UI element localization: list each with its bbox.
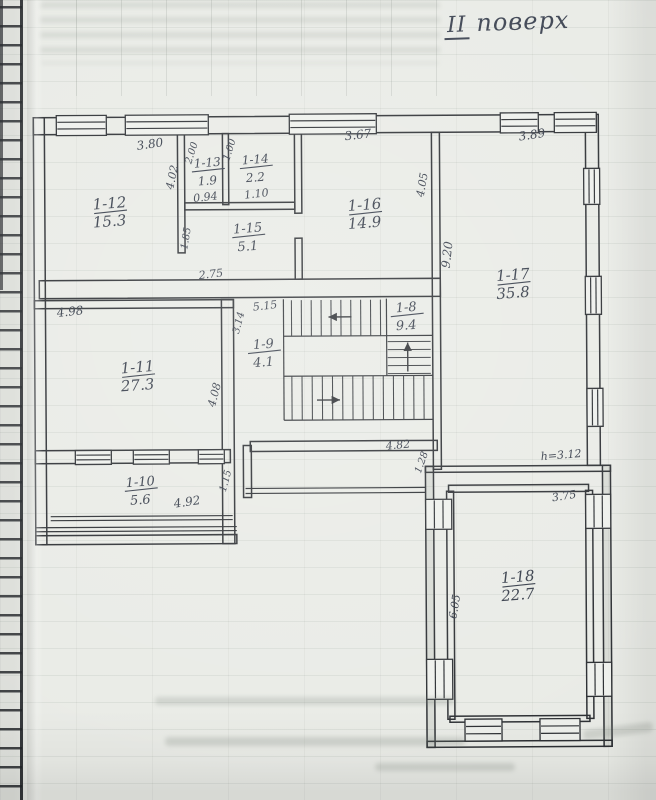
room-area-label: 14.9 <box>347 213 382 234</box>
dimension-label: 3.80 <box>136 135 165 153</box>
window <box>56 115 106 135</box>
window <box>75 450 111 464</box>
window <box>587 662 612 696</box>
wall-line <box>246 487 426 488</box>
dimension-label: 4.05 <box>414 172 431 199</box>
window-pane-line <box>290 120 375 121</box>
wall <box>294 133 301 213</box>
dimension-label: 1.85 <box>179 227 194 251</box>
room-number-label: 1-13 <box>193 155 221 171</box>
wall-line <box>36 531 237 532</box>
stair-arrows-group <box>316 317 408 401</box>
room-area-label: 5.1 <box>237 239 259 256</box>
dimension-label: 3.75 <box>551 488 577 504</box>
window <box>465 719 502 741</box>
labels-group: 1-1215.31-131.91-142.21-155.11-1614.91-1… <box>54 125 583 622</box>
scanned-floor-plan-page: IIповерх 1-1215.31-131.91-142.21-155.11-… <box>0 0 656 800</box>
room-number-label: 1-14 <box>241 151 269 167</box>
wall <box>427 740 612 747</box>
dimension-label: 0.94 <box>192 189 218 205</box>
dimension-label: 6.05 <box>446 593 463 619</box>
wall-line <box>36 527 237 528</box>
room-area-label: 27.3 <box>119 375 155 396</box>
room-area-label: 9.4 <box>395 318 417 335</box>
dimension-label: 4.82 <box>384 437 411 452</box>
room-area-label: 22.7 <box>500 585 536 606</box>
dimension-label: 1.10 <box>243 186 269 202</box>
wall <box>36 535 237 545</box>
room-area-label: 35.8 <box>496 283 531 303</box>
window <box>584 168 600 204</box>
window <box>198 450 224 464</box>
dimension-label: 1.15 <box>218 469 234 493</box>
room-area-label: 5.6 <box>129 492 151 509</box>
wall-line <box>284 335 433 336</box>
dimension-label: 4.92 <box>172 493 201 511</box>
window <box>585 276 601 314</box>
room-area-label: 15.3 <box>92 211 127 231</box>
window <box>586 494 611 528</box>
window <box>587 388 603 426</box>
window <box>125 115 208 136</box>
dimension-label: 3.89 <box>518 126 547 144</box>
wall <box>243 445 251 497</box>
wall <box>33 118 47 545</box>
dimension-label: 3.67 <box>344 126 372 143</box>
dimension-label: h=3.12 <box>540 447 582 463</box>
wall <box>425 465 610 472</box>
wall-line <box>284 419 433 420</box>
wall-line <box>246 492 426 493</box>
dimension-label: 1.00 <box>221 137 238 162</box>
window <box>427 659 453 699</box>
wall-line <box>283 299 284 420</box>
room-area-label: 4.1 <box>252 355 275 372</box>
window <box>426 499 452 529</box>
wall <box>295 238 302 279</box>
wall-line <box>51 520 233 521</box>
wall-line <box>284 375 433 376</box>
wall <box>39 278 440 298</box>
dimension-label: 4.08 <box>205 381 224 409</box>
dimension-label: 4.98 <box>55 303 84 320</box>
window <box>133 450 169 464</box>
dimension-label: 5.15 <box>252 298 278 314</box>
room-area-label: 1.9 <box>197 173 217 188</box>
window <box>540 718 580 740</box>
floor-plan-svg: 1-1215.31-131.91-142.21-155.11-1614.91-1… <box>0 0 656 800</box>
dimension-label: 9.20 <box>439 240 456 269</box>
wall <box>221 300 234 544</box>
windows-group <box>56 112 612 743</box>
window <box>554 112 596 132</box>
room-area-label: 2.2 <box>244 170 265 185</box>
wall-line <box>51 516 233 517</box>
